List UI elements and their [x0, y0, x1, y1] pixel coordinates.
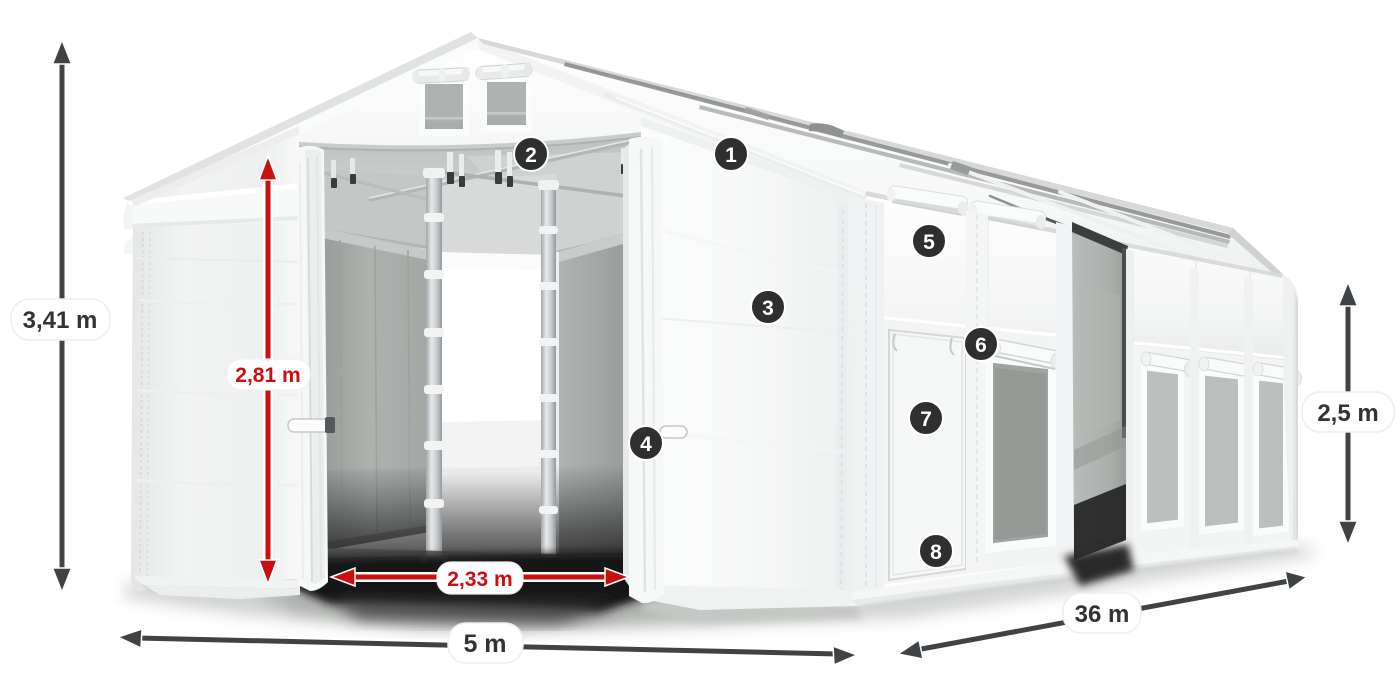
- svg-text:7: 7: [920, 408, 932, 431]
- svg-text:2,81 m: 2,81 m: [235, 364, 300, 387]
- svg-text:2,5 m: 2,5 m: [1317, 400, 1378, 427]
- svg-text:5 m: 5 m: [463, 630, 506, 658]
- svg-text:6: 6: [975, 334, 987, 357]
- svg-text:8: 8: [930, 541, 942, 564]
- svg-text:3: 3: [762, 297, 774, 320]
- svg-text:2: 2: [525, 144, 537, 167]
- svg-text:3,41 m: 3,41 m: [23, 307, 98, 334]
- svg-text:5: 5: [923, 231, 935, 254]
- svg-text:1: 1: [725, 144, 737, 167]
- svg-text:4: 4: [640, 433, 652, 456]
- svg-text:2,33 m: 2,33 m: [447, 568, 512, 591]
- svg-text:36 m: 36 m: [1075, 601, 1130, 628]
